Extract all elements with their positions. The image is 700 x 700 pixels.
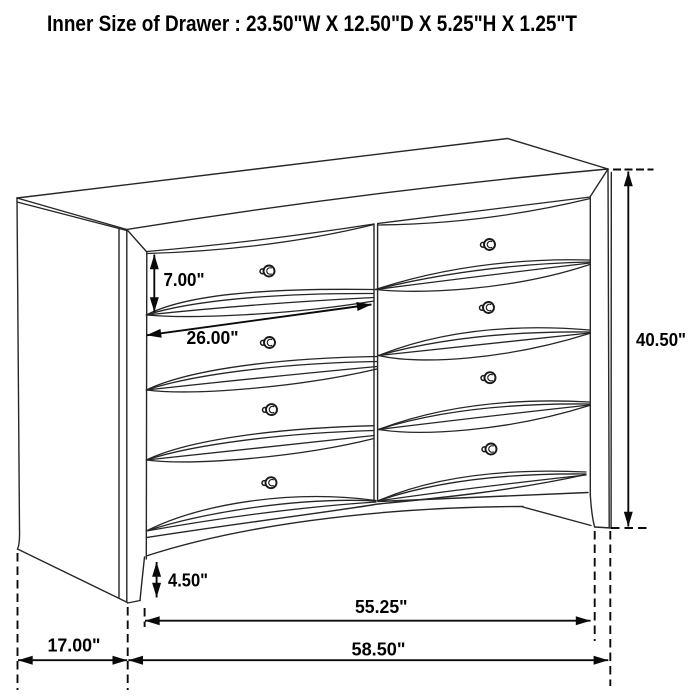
svg-text:4.50": 4.50" xyxy=(168,571,208,591)
svg-text:58.50": 58.50" xyxy=(352,640,406,660)
svg-text:40.50": 40.50" xyxy=(636,330,686,350)
svg-text:55.25": 55.25" xyxy=(355,597,408,617)
svg-text:7.00": 7.00" xyxy=(164,270,205,290)
svg-text:17.00": 17.00" xyxy=(48,636,101,656)
svg-text:Inner Size of Drawer : 23.50"W: Inner Size of Drawer : 23.50"W X 12.50"D… xyxy=(47,11,577,36)
svg-text:26.00": 26.00" xyxy=(187,328,239,348)
